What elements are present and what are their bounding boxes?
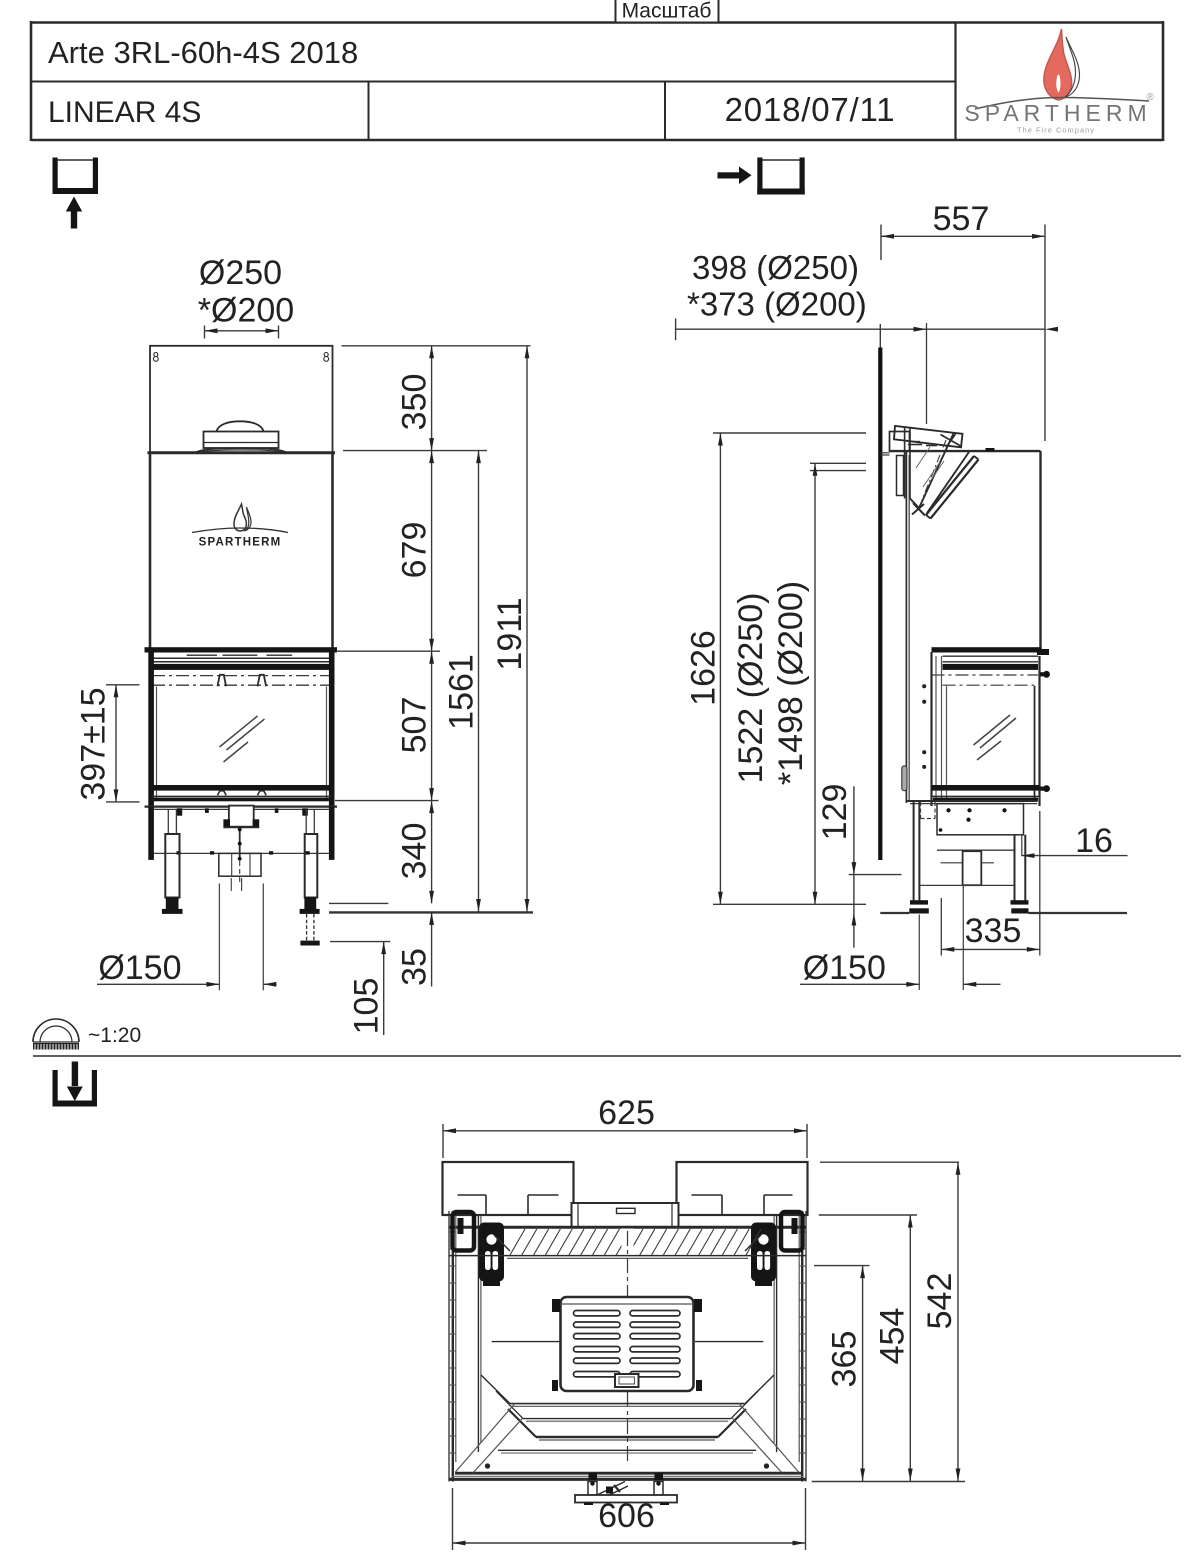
svg-text:1561: 1561 <box>442 654 480 730</box>
svg-text:*373 (Ø200): *373 (Ø200) <box>687 286 867 323</box>
svg-text:398 (Ø250): 398 (Ø250) <box>692 249 859 286</box>
svg-text:SPARTHERM: SPARTHERM <box>964 100 1151 126</box>
svg-text:397±15: 397±15 <box>74 687 112 800</box>
svg-text:~1:20: ~1:20 <box>88 1024 141 1047</box>
svg-text:350: 350 <box>395 374 433 431</box>
svg-text:Ø150: Ø150 <box>98 949 181 987</box>
svg-text:35: 35 <box>395 948 433 986</box>
svg-text:507: 507 <box>395 697 433 754</box>
svg-text:365: 365 <box>825 1331 863 1388</box>
svg-text:16: 16 <box>1075 822 1113 860</box>
svg-text:Arte 3RL-60h-4S 2018: Arte 3RL-60h-4S 2018 <box>48 35 358 70</box>
svg-text:105: 105 <box>347 978 385 1035</box>
svg-text:335: 335 <box>965 912 1022 950</box>
svg-text:Масштаб: Масштаб <box>622 0 712 23</box>
svg-text:1522 (Ø250): 1522 (Ø250) <box>732 593 770 784</box>
svg-text:625: 625 <box>598 1094 655 1132</box>
svg-text:1626: 1626 <box>684 630 722 706</box>
svg-text:LINEAR 4S: LINEAR 4S <box>48 96 201 129</box>
svg-text:The Fire Company: The Fire Company <box>1017 126 1095 135</box>
svg-text:340: 340 <box>395 823 433 880</box>
svg-text:606: 606 <box>598 1497 655 1535</box>
svg-text:2018/07/11: 2018/07/11 <box>725 91 896 128</box>
svg-text:SPARTHERM: SPARTHERM <box>199 537 282 549</box>
svg-text:Ø250: Ø250 <box>199 254 282 292</box>
svg-text:542: 542 <box>921 1273 959 1330</box>
svg-text:1911: 1911 <box>491 597 529 670</box>
svg-text:557: 557 <box>933 200 990 238</box>
svg-text:129: 129 <box>816 784 854 841</box>
svg-text:454: 454 <box>873 1308 911 1365</box>
svg-text:*Ø200: *Ø200 <box>198 292 294 330</box>
svg-text:679: 679 <box>395 522 433 579</box>
svg-text:®: ® <box>1147 92 1155 103</box>
svg-text:*1498 (Ø200): *1498 (Ø200) <box>772 581 810 785</box>
svg-text:Ø150: Ø150 <box>803 949 886 987</box>
